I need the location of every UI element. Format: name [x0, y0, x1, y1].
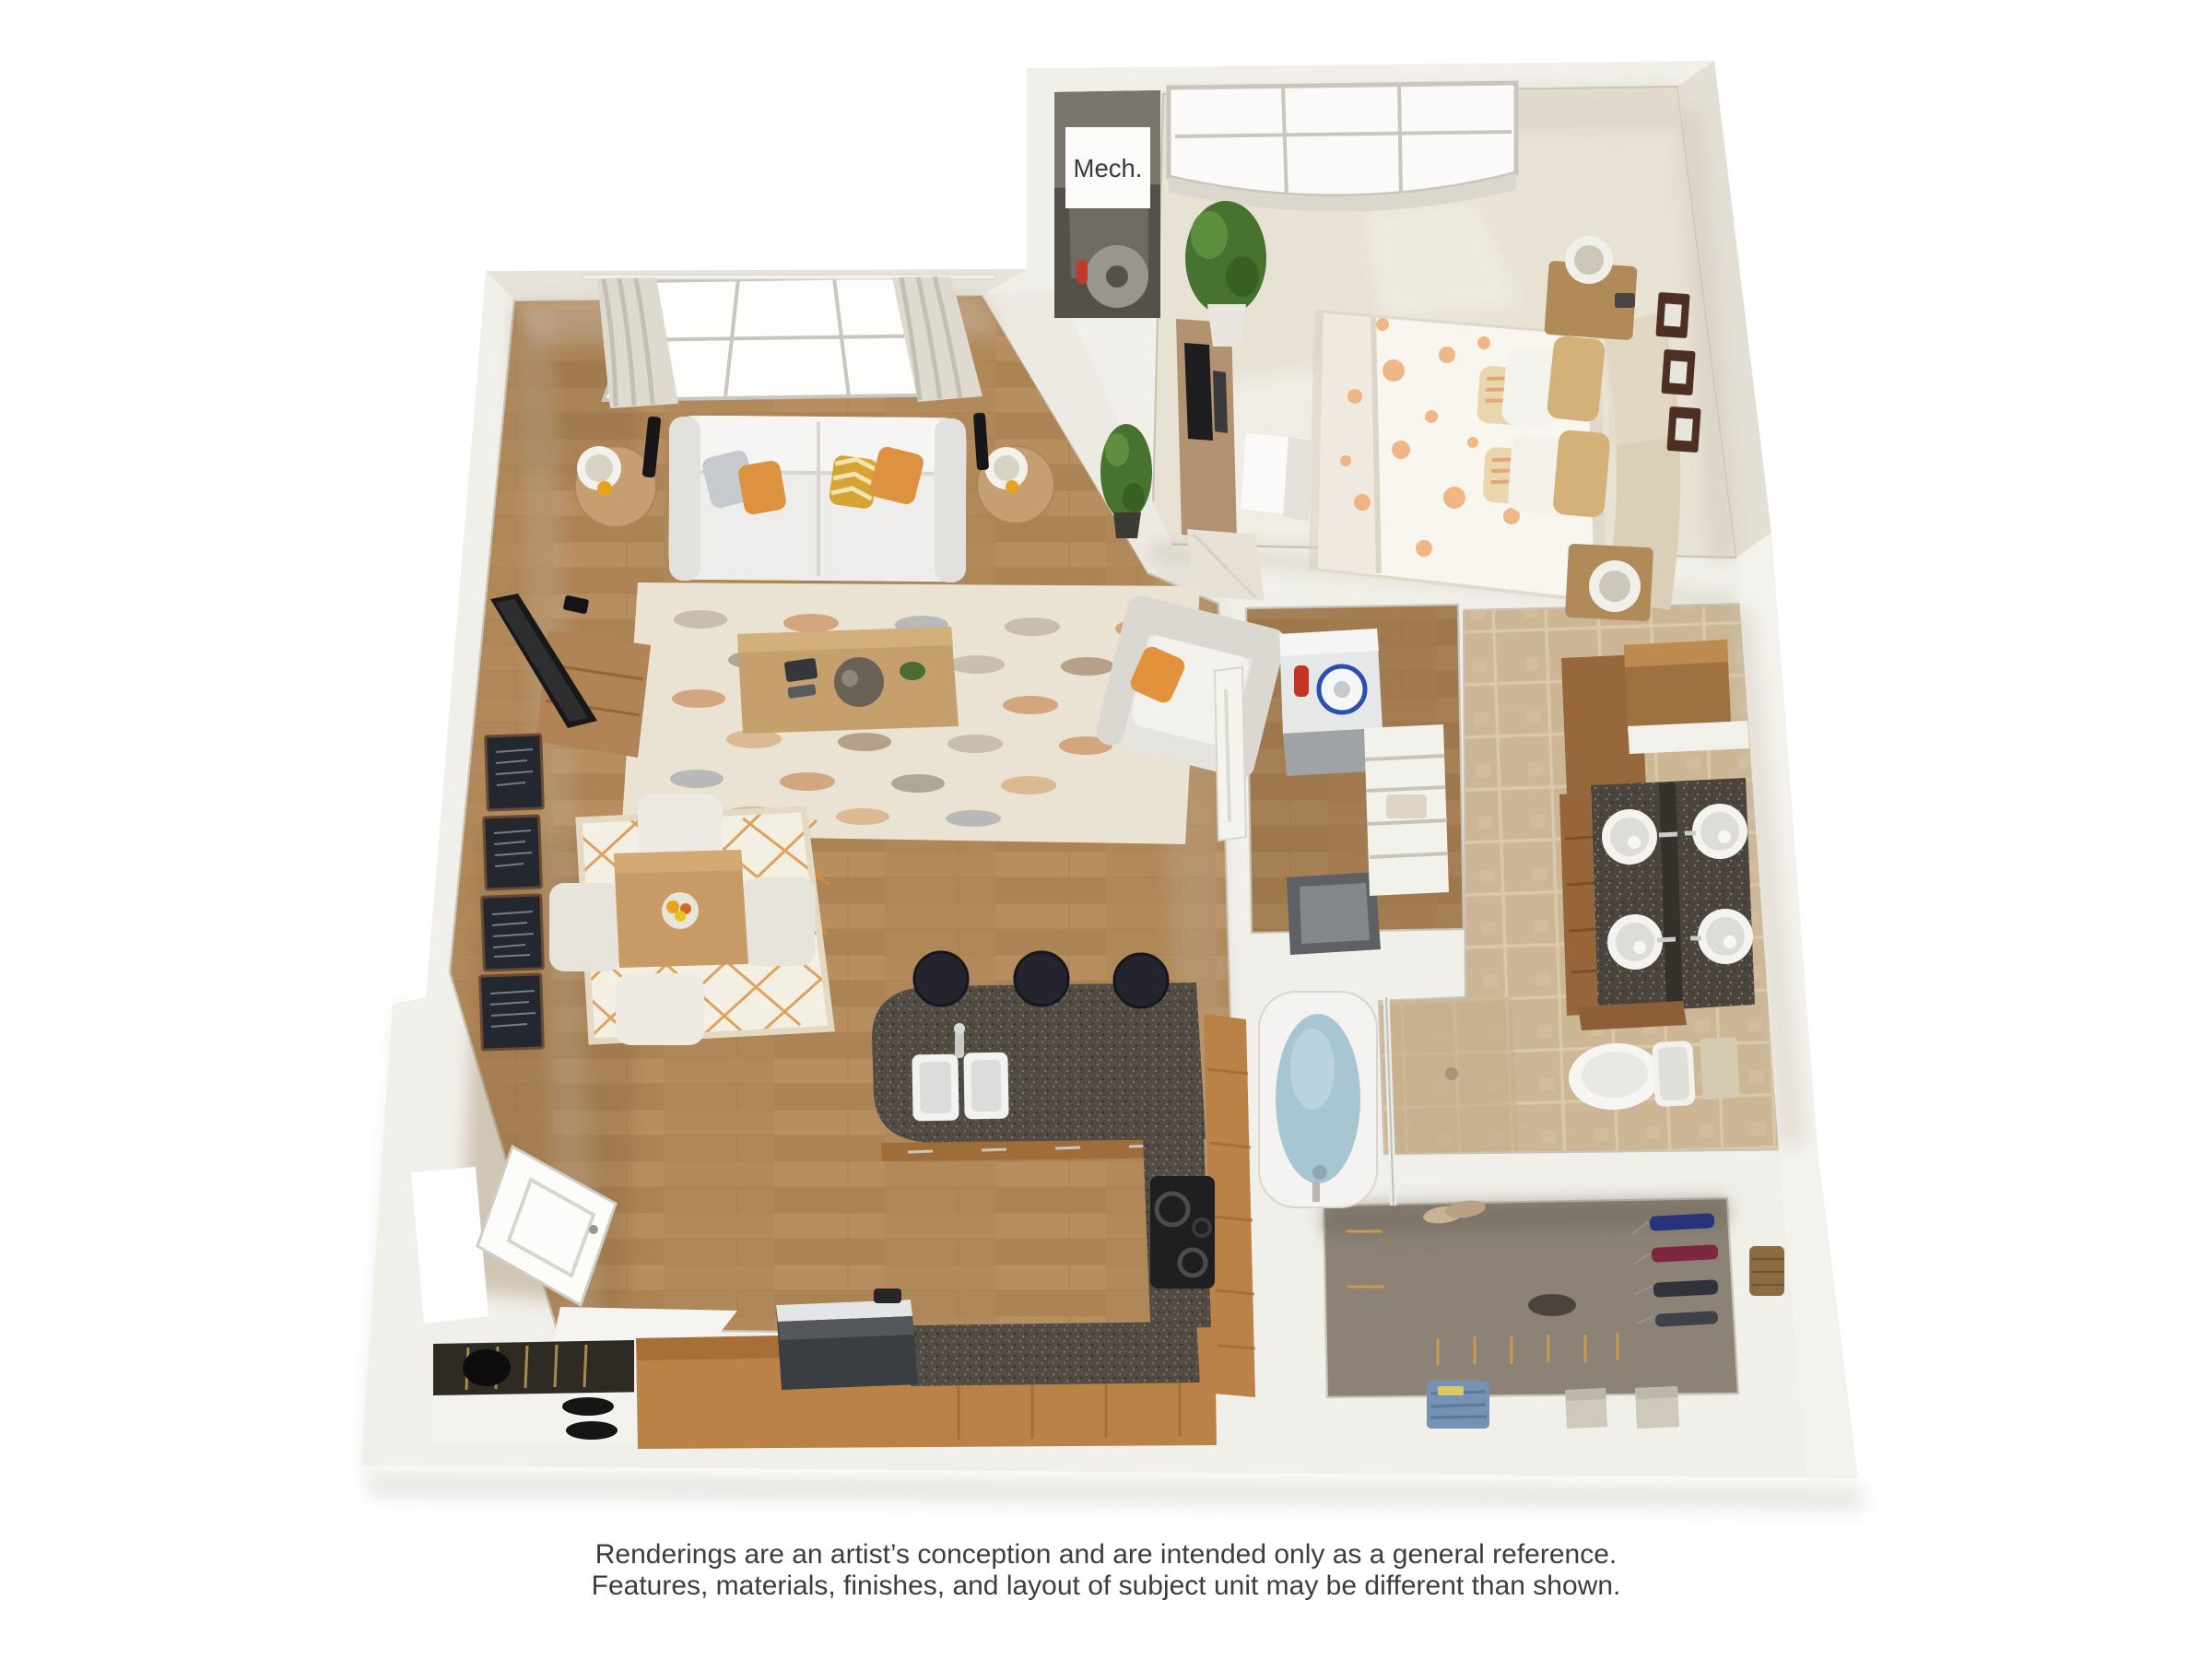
svg-text:Mech.: Mech. — [1074, 154, 1143, 182]
svg-text:Features, materials, finishes,: Features, materials, finishes, and layou… — [592, 1571, 1621, 1601]
svg-text:Renderings are an artist’s con: Renderings are an artist’s conception an… — [595, 1539, 1618, 1570]
